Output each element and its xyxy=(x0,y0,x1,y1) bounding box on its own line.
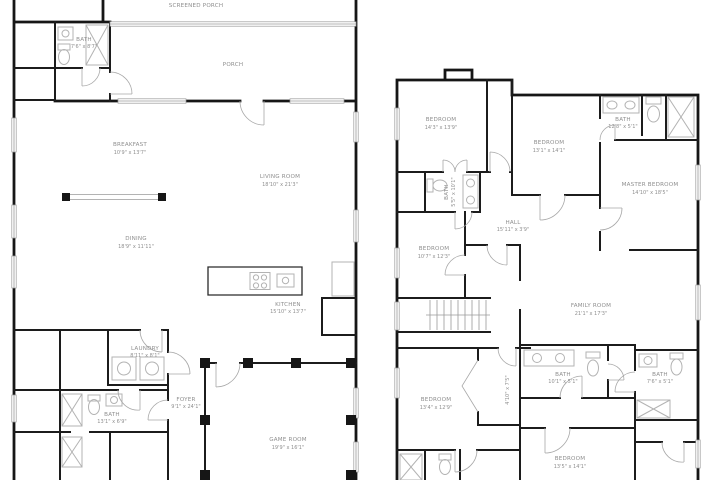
room-dims: 14'10" x 18'5" xyxy=(632,190,668,196)
room-label: BATH xyxy=(555,372,571,378)
room-dims: 13'4" x 12'9" xyxy=(420,405,453,411)
room-dims: 13'5" x 14'1" xyxy=(554,464,587,470)
room-label: BATH xyxy=(615,117,631,123)
second-floor-plan: BEDROOM 14'3" x 13'9" BEDROOM 13'1" x 14… xyxy=(395,70,700,480)
room-label: MASTER BEDROOM xyxy=(622,182,679,188)
staircase xyxy=(426,300,490,330)
room-label: BEDROOM xyxy=(421,397,452,403)
room-label: LAUNDRY xyxy=(131,346,159,352)
room-label: PORCH xyxy=(223,62,244,68)
room-dims: 10'7" x 12'3" xyxy=(418,254,451,260)
room-label: HALL xyxy=(505,220,521,226)
room-label: BEDROOM xyxy=(419,246,450,252)
room-dims: 15'11" x 3'9" xyxy=(497,227,530,233)
room-label: FAMILY ROOM xyxy=(571,303,611,309)
room-dims: 14'3" x 13'9" xyxy=(425,125,458,131)
room-label: SCREENED PORCH xyxy=(169,3,224,9)
room-label: FOYER xyxy=(176,397,195,403)
room-label: BATH xyxy=(76,37,92,43)
room-label: BATH xyxy=(104,412,120,418)
room-label: BATH xyxy=(444,184,450,200)
room-dims: 7'6" x 8'7" xyxy=(71,44,97,50)
room-dims: 12'8" x 5'1" xyxy=(608,124,637,130)
room-dims: 13'1" x 14'1" xyxy=(533,148,566,154)
columns xyxy=(62,193,356,480)
room-dims: 10'9" x 13'7" xyxy=(114,150,147,156)
first-floor-interior-walls xyxy=(14,22,356,480)
first-floor-labels: SCREENED PORCH BATH 7'6" x 8'7" PORCH BR… xyxy=(71,3,307,451)
room-dims: 9'1" x 24'1" xyxy=(171,404,200,410)
room-dims: 13'1" x 6'9" xyxy=(97,419,126,425)
second-floor-fixtures xyxy=(400,97,694,480)
room-label: BREAKFAST xyxy=(113,142,147,148)
room-dims: 15'10" x 13'7" xyxy=(270,309,306,315)
room-label: LIVING ROOM xyxy=(260,174,300,180)
room-label: KITCHEN xyxy=(275,302,301,308)
room-label: BATH xyxy=(652,372,668,378)
floorplan-svg: SCREENED PORCH BATH 7'6" x 8'7" PORCH BR… xyxy=(0,0,720,480)
room-dims: 4'10" x 7'5" xyxy=(505,375,511,404)
room-dims: 10'1" x 5'1" xyxy=(548,379,577,385)
room-dims: 19'9" x 16'1" xyxy=(272,445,305,451)
room-dims: 5'5" x 10'1" xyxy=(451,177,457,206)
second-floor-windows xyxy=(395,108,700,468)
first-floor-doors xyxy=(82,68,264,420)
half-wall xyxy=(70,195,158,200)
floorplan-image: SCREENED PORCH BATH 7'6" x 8'7" PORCH BR… xyxy=(0,0,720,480)
room-label: BEDROOM xyxy=(426,117,457,123)
room-dims: 21'1" x 17'3" xyxy=(575,311,608,317)
room-label: DINING xyxy=(125,236,147,242)
room-dims: 7'6" x 5'1" xyxy=(647,379,673,385)
room-label: BEDROOM xyxy=(555,456,586,462)
rotated-bath-label: BATH 5'5" x 10'1" xyxy=(444,177,457,206)
room-label: BEDROOM xyxy=(534,140,565,146)
room-label: GAME ROOM xyxy=(269,437,307,443)
first-floor-plan: SCREENED PORCH BATH 7'6" x 8'7" PORCH BR… xyxy=(12,0,358,480)
room-dims: 18'10" x 21'3" xyxy=(262,182,298,188)
room-dims: 8'11" x 8'1" xyxy=(130,353,159,359)
kitchen-island xyxy=(208,267,302,295)
room-dims: 18'9" x 11'11" xyxy=(118,244,154,250)
